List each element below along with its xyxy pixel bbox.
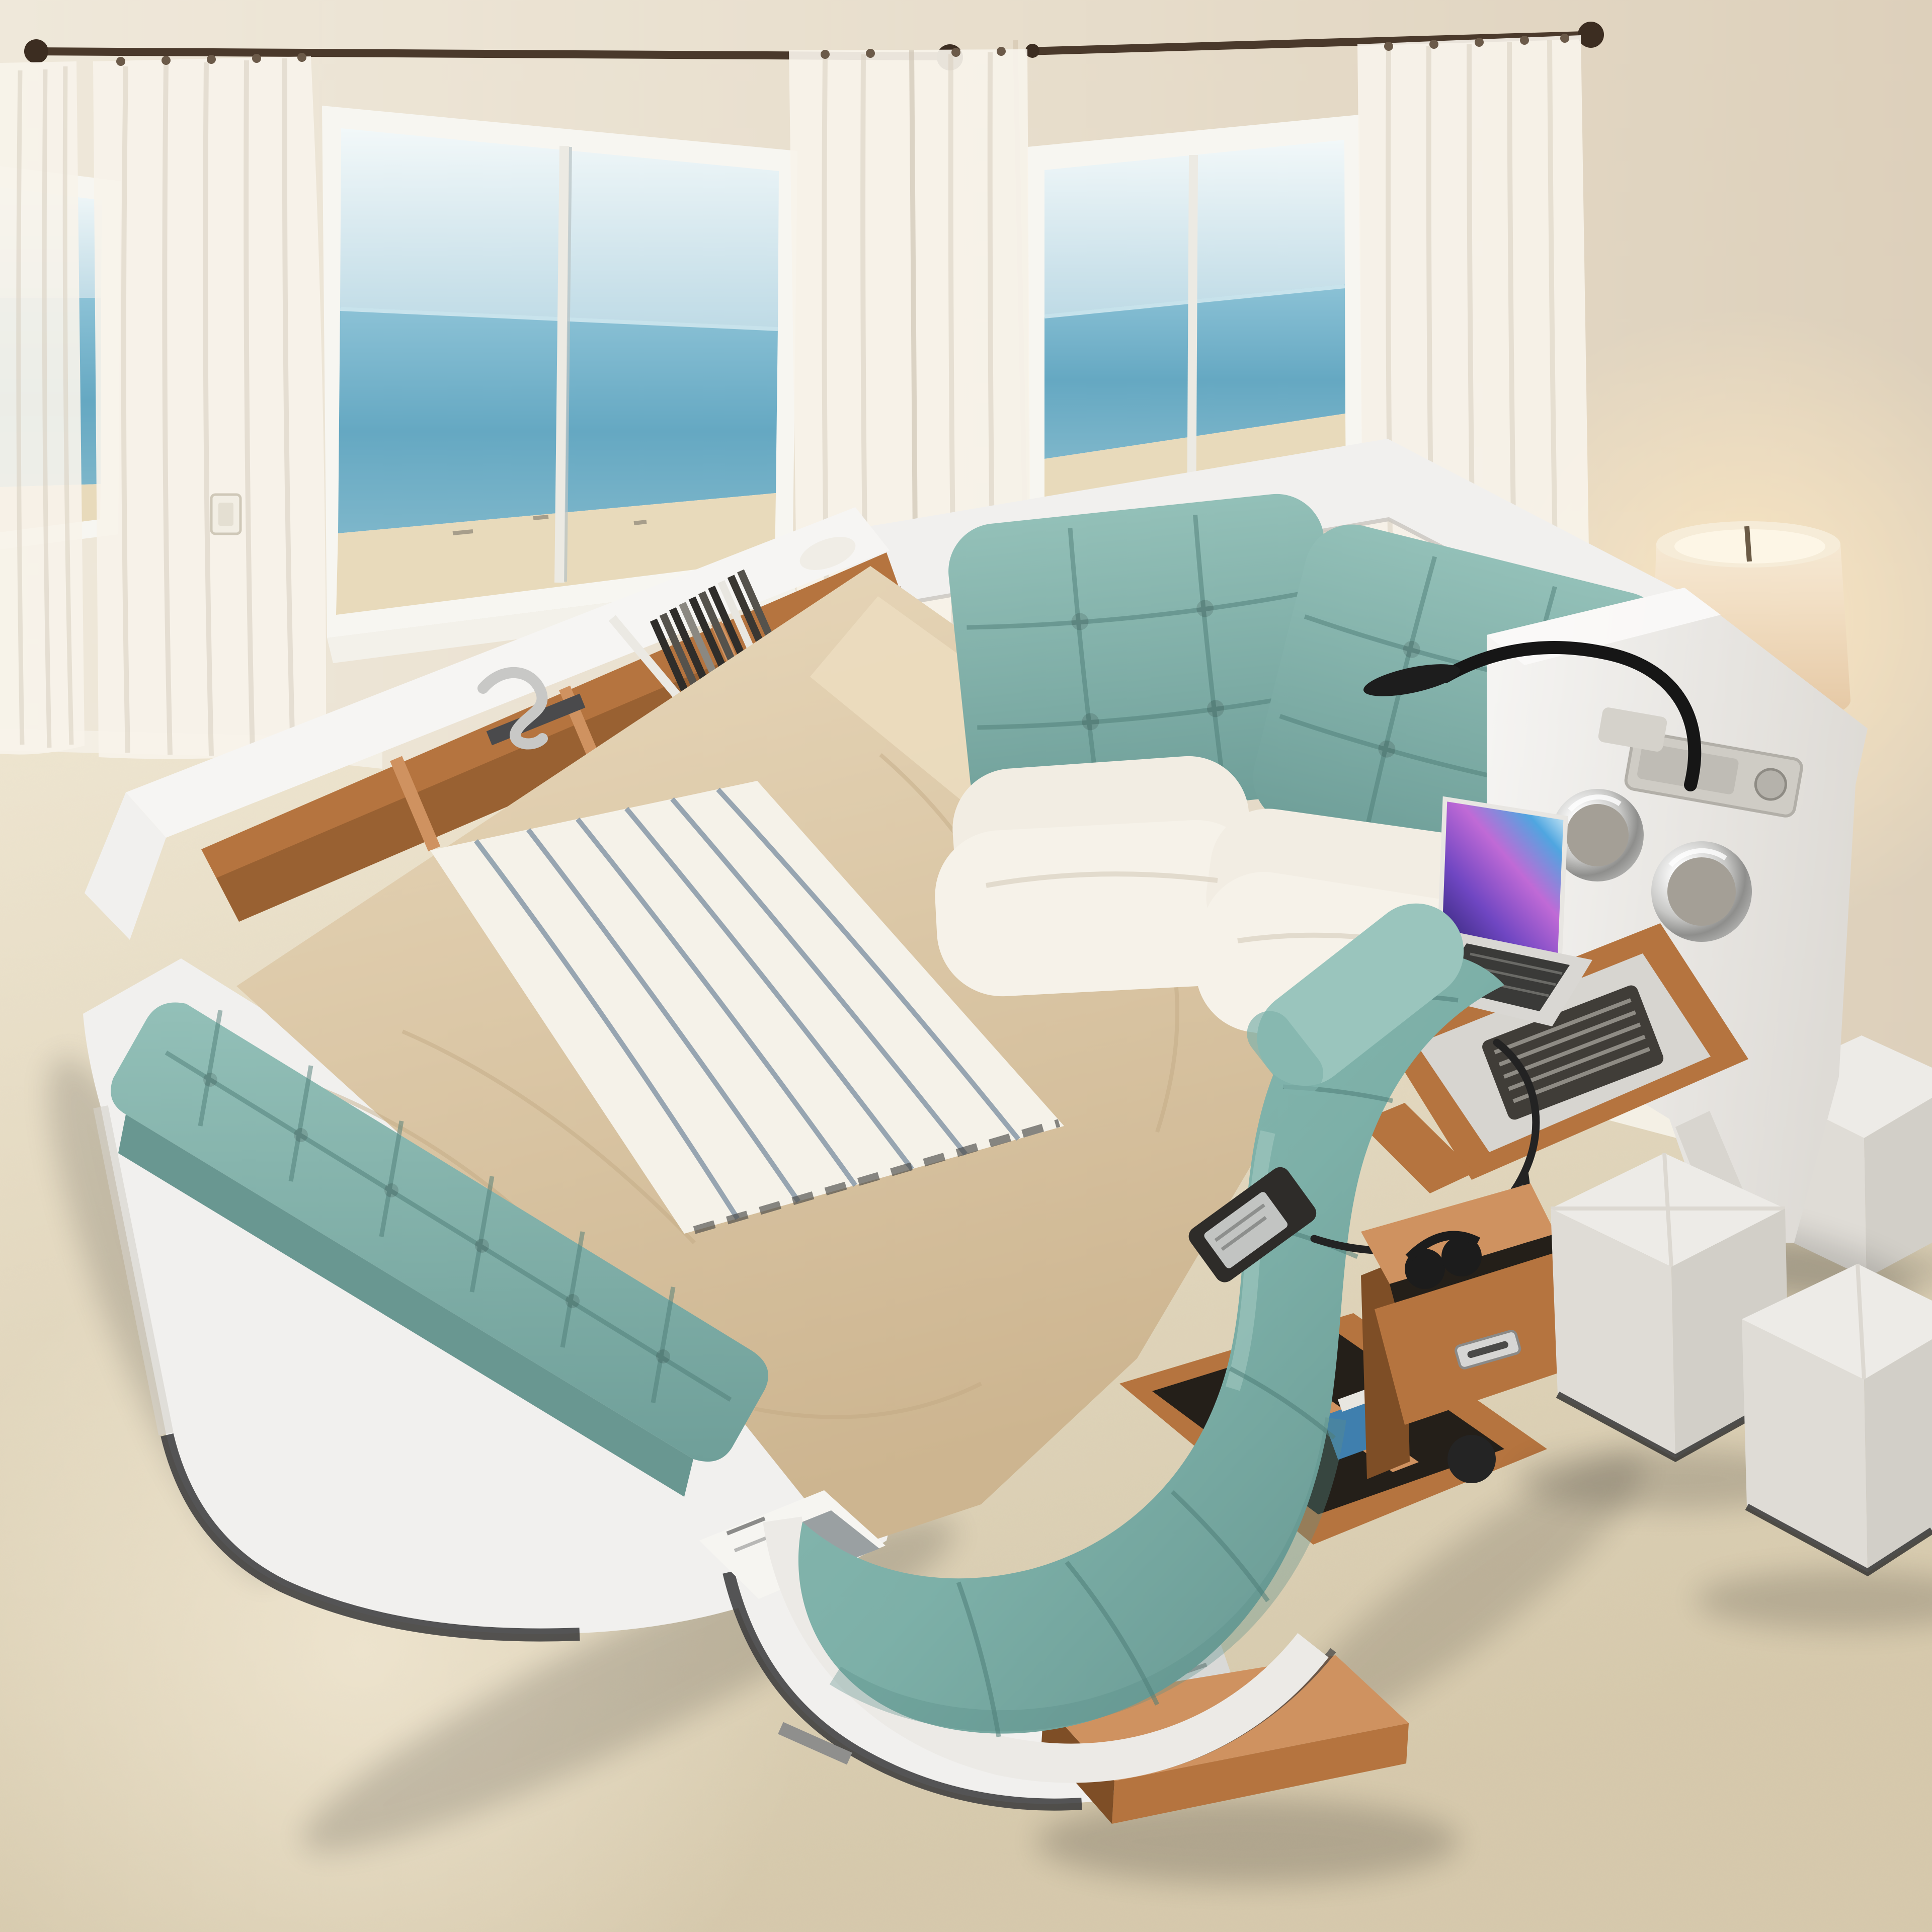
cubby-gear <box>1447 1435 1496 1483</box>
curtain-panel-left <box>93 53 326 759</box>
lamp-bulb-stem <box>1747 526 1749 561</box>
light-switch <box>211 495 240 534</box>
rod-finial <box>1578 22 1604 48</box>
rod-finial <box>24 39 48 63</box>
window-mullion <box>559 146 565 583</box>
switch-rocker <box>218 503 233 526</box>
rod-bracket <box>1025 44 1039 58</box>
speaker-right <box>1651 841 1752 942</box>
curtain-panel-far-left <box>0 61 85 755</box>
bedroom-scene <box>0 0 1932 1932</box>
